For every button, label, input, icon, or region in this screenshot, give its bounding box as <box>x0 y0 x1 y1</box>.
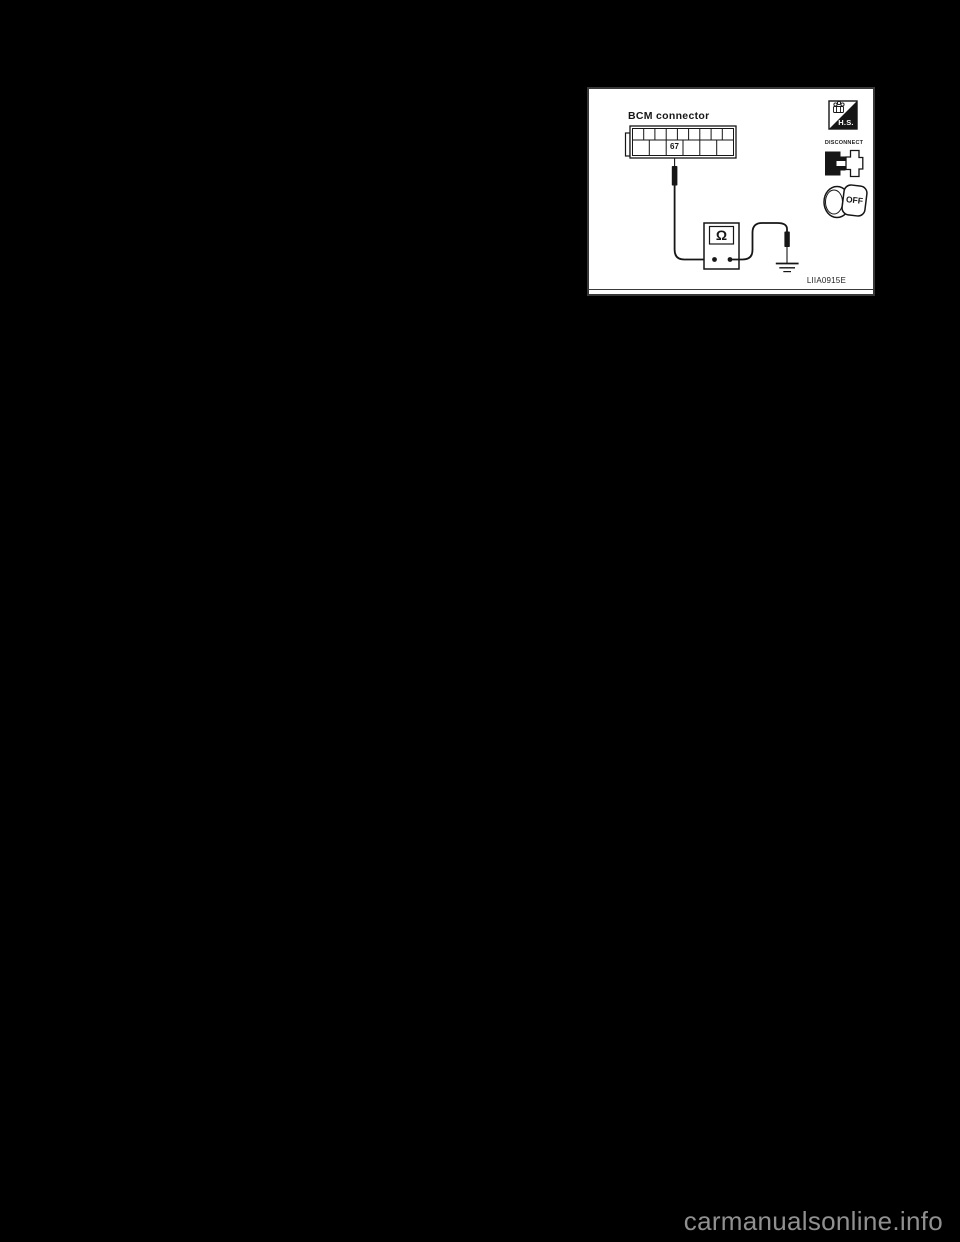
connector-key-notch <box>626 133 631 156</box>
disconnect-badge-label: DISCONNECT <box>819 140 869 146</box>
ohmmeter-symbol: Ω <box>709 226 734 244</box>
disconnect-connectors-icon <box>825 151 863 177</box>
wire-right <box>733 223 788 260</box>
figure-panel: BCM connector 67 Ω H.S. DISCONNECT OFF L… <box>587 87 875 296</box>
pin-67-label: 67 <box>666 142 683 151</box>
watermark-link[interactable]: carmanualsonline.info <box>684 1206 943 1237</box>
test-probe-pin67 <box>672 158 678 186</box>
ground-symbol-icon <box>776 264 799 272</box>
key-off-label: OFF <box>844 193 866 205</box>
figure-frame-bottom-line <box>589 289 873 290</box>
hs-tool-glyph <box>834 101 845 112</box>
test-probe-ground <box>784 232 789 264</box>
bcm-connector-label: BCM connector <box>628 110 710 122</box>
hs-badge-label: H.S. <box>836 118 856 127</box>
figure-code-label: LIIA0915E <box>807 276 846 285</box>
